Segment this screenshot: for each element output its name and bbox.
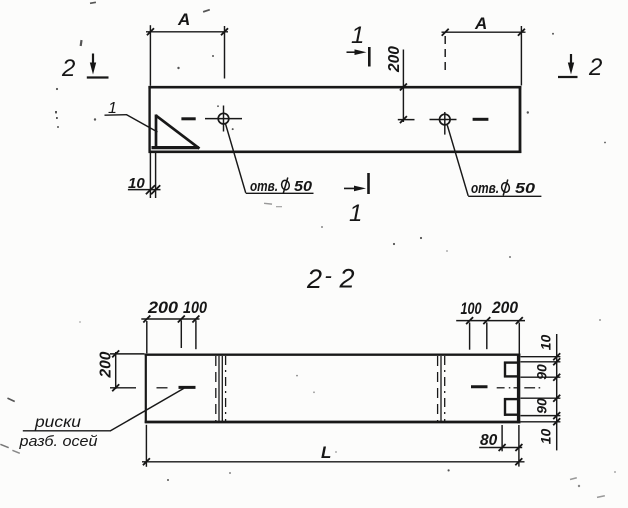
svg-text:L: L [321, 443, 331, 462]
svg-text:200: 200 [147, 299, 179, 317]
svg-text:A: A [177, 10, 190, 29]
svg-text:риски: риски [34, 414, 82, 431]
svg-text:1: 1 [349, 200, 362, 227]
svg-text:2: 2 [306, 264, 322, 294]
svg-text:200: 200 [386, 46, 403, 73]
svg-text:2: 2 [61, 55, 75, 82]
svg-text:A: A [474, 14, 487, 33]
svg-text:100: 100 [183, 299, 208, 317]
svg-text:10: 10 [538, 429, 554, 445]
svg-text:1: 1 [351, 22, 364, 49]
svg-text:10: 10 [538, 335, 554, 351]
svg-text:-: - [325, 263, 332, 288]
svg-text:разб. осей: разб. осей [18, 433, 98, 450]
svg-text:1: 1 [108, 100, 117, 117]
svg-text:2: 2 [339, 264, 355, 294]
svg-text:90: 90 [534, 398, 550, 414]
svg-text:200: 200 [98, 351, 115, 378]
svg-text:100: 100 [461, 300, 483, 318]
svg-text:отв.: отв. [250, 179, 278, 195]
svg-text:80: 80 [480, 432, 498, 449]
svg-text:200: 200 [491, 299, 519, 317]
svg-text:50: 50 [294, 179, 312, 195]
svg-text:50: 50 [515, 181, 535, 197]
svg-text:90: 90 [534, 364, 550, 380]
svg-text:отв.: отв. [471, 181, 499, 197]
svg-text:2: 2 [588, 54, 602, 81]
svg-text:10: 10 [128, 175, 145, 192]
